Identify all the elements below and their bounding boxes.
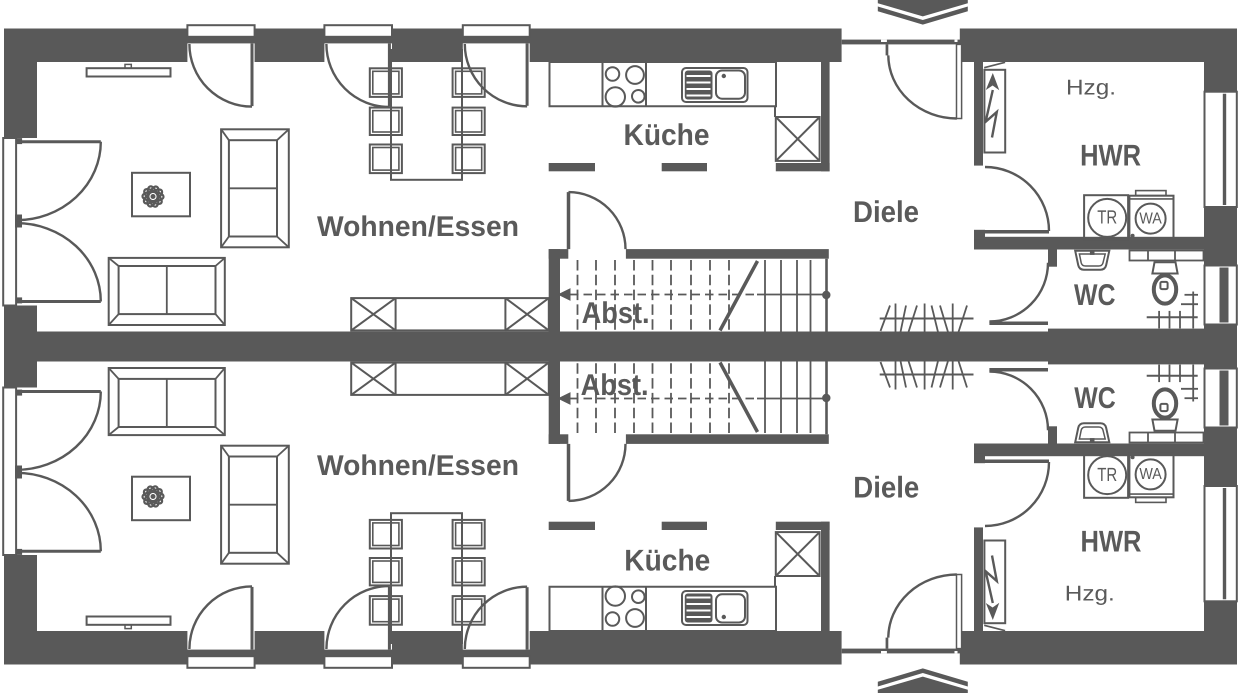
svg-text:Abst.: Abst. bbox=[581, 369, 649, 402]
svg-text:HWR: HWR bbox=[1080, 139, 1141, 172]
svg-text:Küche: Küche bbox=[624, 544, 710, 577]
svg-text:Hzg.: Hzg. bbox=[1065, 582, 1115, 606]
svg-text:Diele: Diele bbox=[853, 196, 919, 229]
svg-text:Küche: Küche bbox=[624, 119, 710, 152]
svg-text:HWR: HWR bbox=[1081, 526, 1142, 559]
svg-text:Diele: Diele bbox=[853, 471, 919, 504]
svg-text:Hzg.: Hzg. bbox=[1066, 76, 1116, 100]
svg-text:WA: WA bbox=[1139, 466, 1162, 483]
svg-text:Wohnen/Essen: Wohnen/Essen bbox=[317, 211, 519, 243]
svg-text:TR: TR bbox=[1097, 208, 1117, 229]
svg-text:WC: WC bbox=[1074, 279, 1116, 312]
svg-text:Wohnen/Essen: Wohnen/Essen bbox=[317, 450, 519, 482]
svg-text:TR: TR bbox=[1097, 465, 1117, 486]
svg-text:Abst.: Abst. bbox=[582, 297, 650, 330]
svg-text:WA: WA bbox=[1139, 211, 1162, 228]
svg-text:WC: WC bbox=[1074, 382, 1116, 415]
